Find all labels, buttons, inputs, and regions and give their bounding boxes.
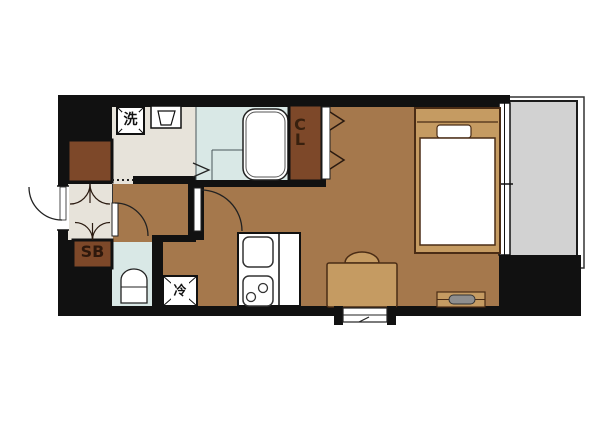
label-refrigerator: 冷 (163, 285, 197, 298)
mattress (420, 138, 495, 245)
hall-floor (113, 184, 188, 235)
toilet-threshold (113, 235, 152, 242)
stove-burner-2 (259, 284, 268, 293)
bed (415, 108, 500, 253)
balcony (504, 97, 584, 268)
stove (243, 276, 273, 306)
toilet-fixture (121, 269, 147, 303)
storage-cabinet (68, 140, 112, 182)
kitchen (238, 233, 300, 306)
toilet-door-leaf (112, 203, 118, 236)
pillow (437, 125, 471, 138)
bathtub (243, 109, 288, 180)
label-closet: CL (291, 117, 309, 147)
balcony-deck (507, 101, 577, 262)
bottom-window-cap-left (334, 306, 343, 325)
floor-plan-drawing (0, 0, 600, 425)
closet-door-track (322, 107, 330, 179)
tv-board (437, 292, 485, 307)
table (327, 263, 397, 307)
stove-burner-1 (247, 293, 256, 302)
bottom-window-cap-right (387, 306, 396, 325)
bottom-window (334, 306, 396, 325)
label-washing-machine: 洗 (117, 113, 144, 127)
tv (449, 295, 475, 304)
label-shoe-box: SB (73, 244, 112, 260)
kitchen-sink (243, 237, 273, 267)
wall-block-bottom-right (499, 255, 581, 316)
front-door-leaf (60, 187, 66, 220)
floor-plan: 洗 CL SB 冷 (0, 0, 600, 425)
main-door-leaf (194, 188, 201, 231)
